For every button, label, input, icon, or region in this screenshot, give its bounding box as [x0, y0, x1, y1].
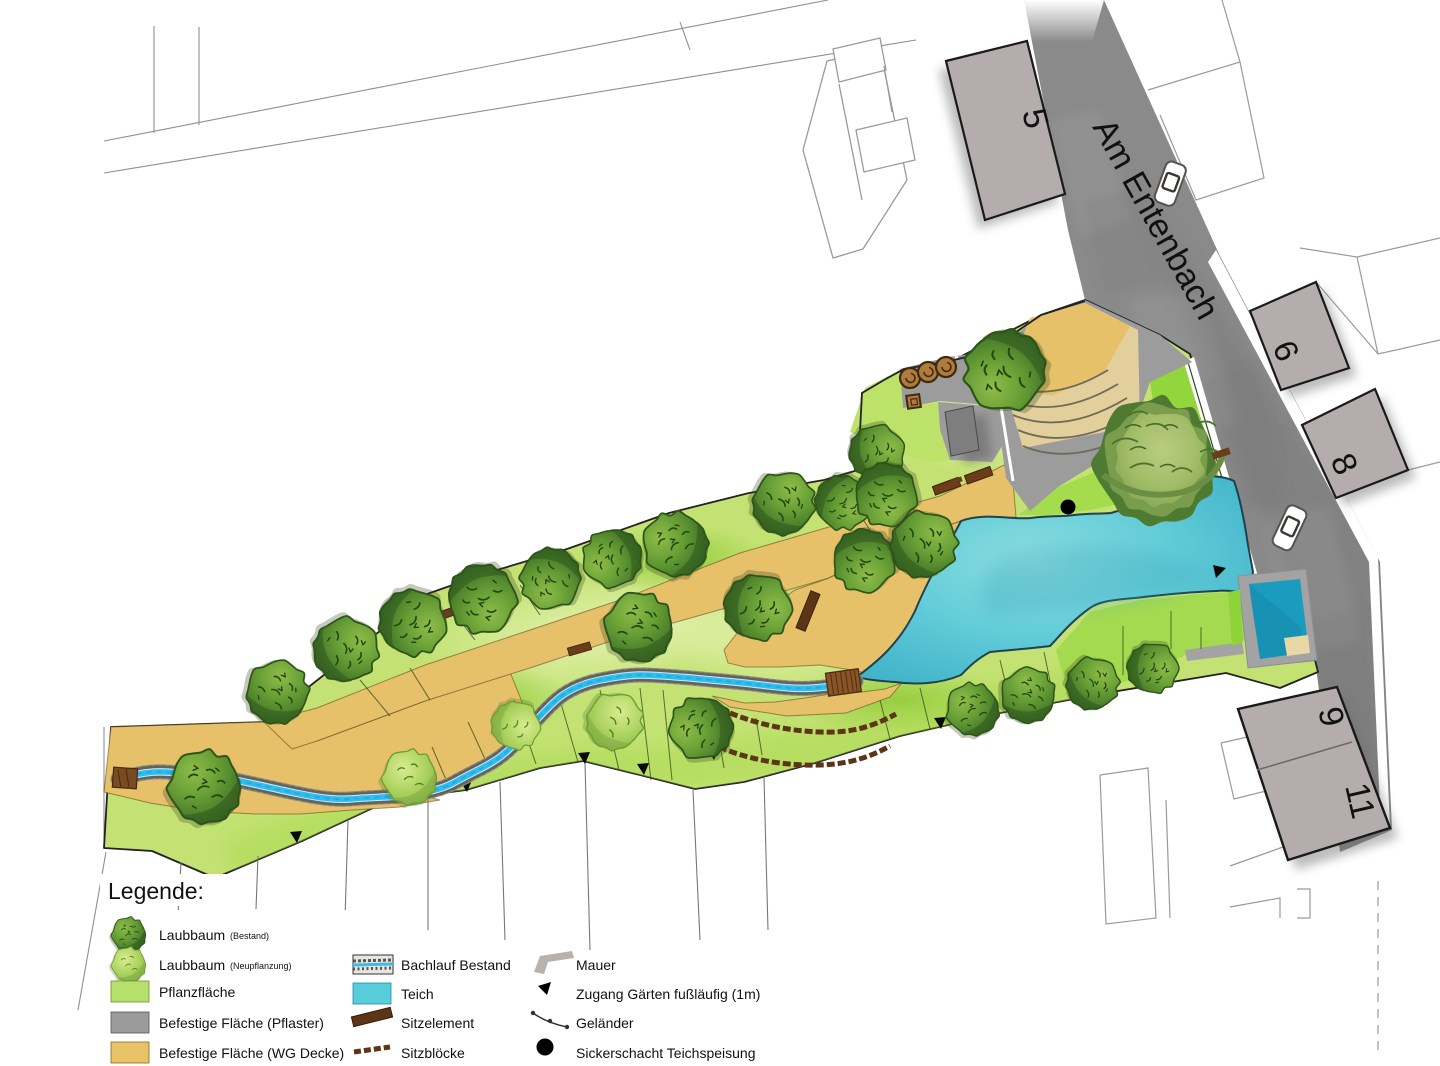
svg-text:Sitzelement: Sitzelement	[401, 1015, 474, 1031]
svg-text:(Bestand): (Bestand)	[230, 931, 269, 941]
svg-text:Legende:: Legende:	[108, 878, 204, 904]
svg-text:Befestige Fläche (Pflaster): Befestige Fläche (Pflaster)	[159, 1015, 324, 1031]
svg-text:Bachlauf Bestand: Bachlauf Bestand	[401, 957, 511, 973]
svg-text:Geländer: Geländer	[576, 1015, 634, 1031]
svg-text:Befestige Fläche (WG Decke): Befestige Fläche (WG Decke)	[159, 1045, 344, 1061]
svg-text:Laubbaum: Laubbaum	[159, 957, 225, 973]
svg-text:Sickerschacht Teichspeisung: Sickerschacht Teichspeisung	[576, 1045, 756, 1061]
svg-text:(Neupflanzung): (Neupflanzung)	[230, 961, 292, 971]
svg-text:Zugang Gärten fußläufig (1m): Zugang Gärten fußläufig (1m)	[576, 986, 760, 1002]
svg-text:Mauer: Mauer	[576, 957, 616, 973]
svg-text:Pflanzfläche: Pflanzfläche	[159, 984, 235, 1000]
svg-text:Teich: Teich	[401, 986, 434, 1002]
svg-text:Laubbaum: Laubbaum	[159, 927, 225, 943]
svg-text:Sitzblöcke: Sitzblöcke	[401, 1045, 465, 1061]
